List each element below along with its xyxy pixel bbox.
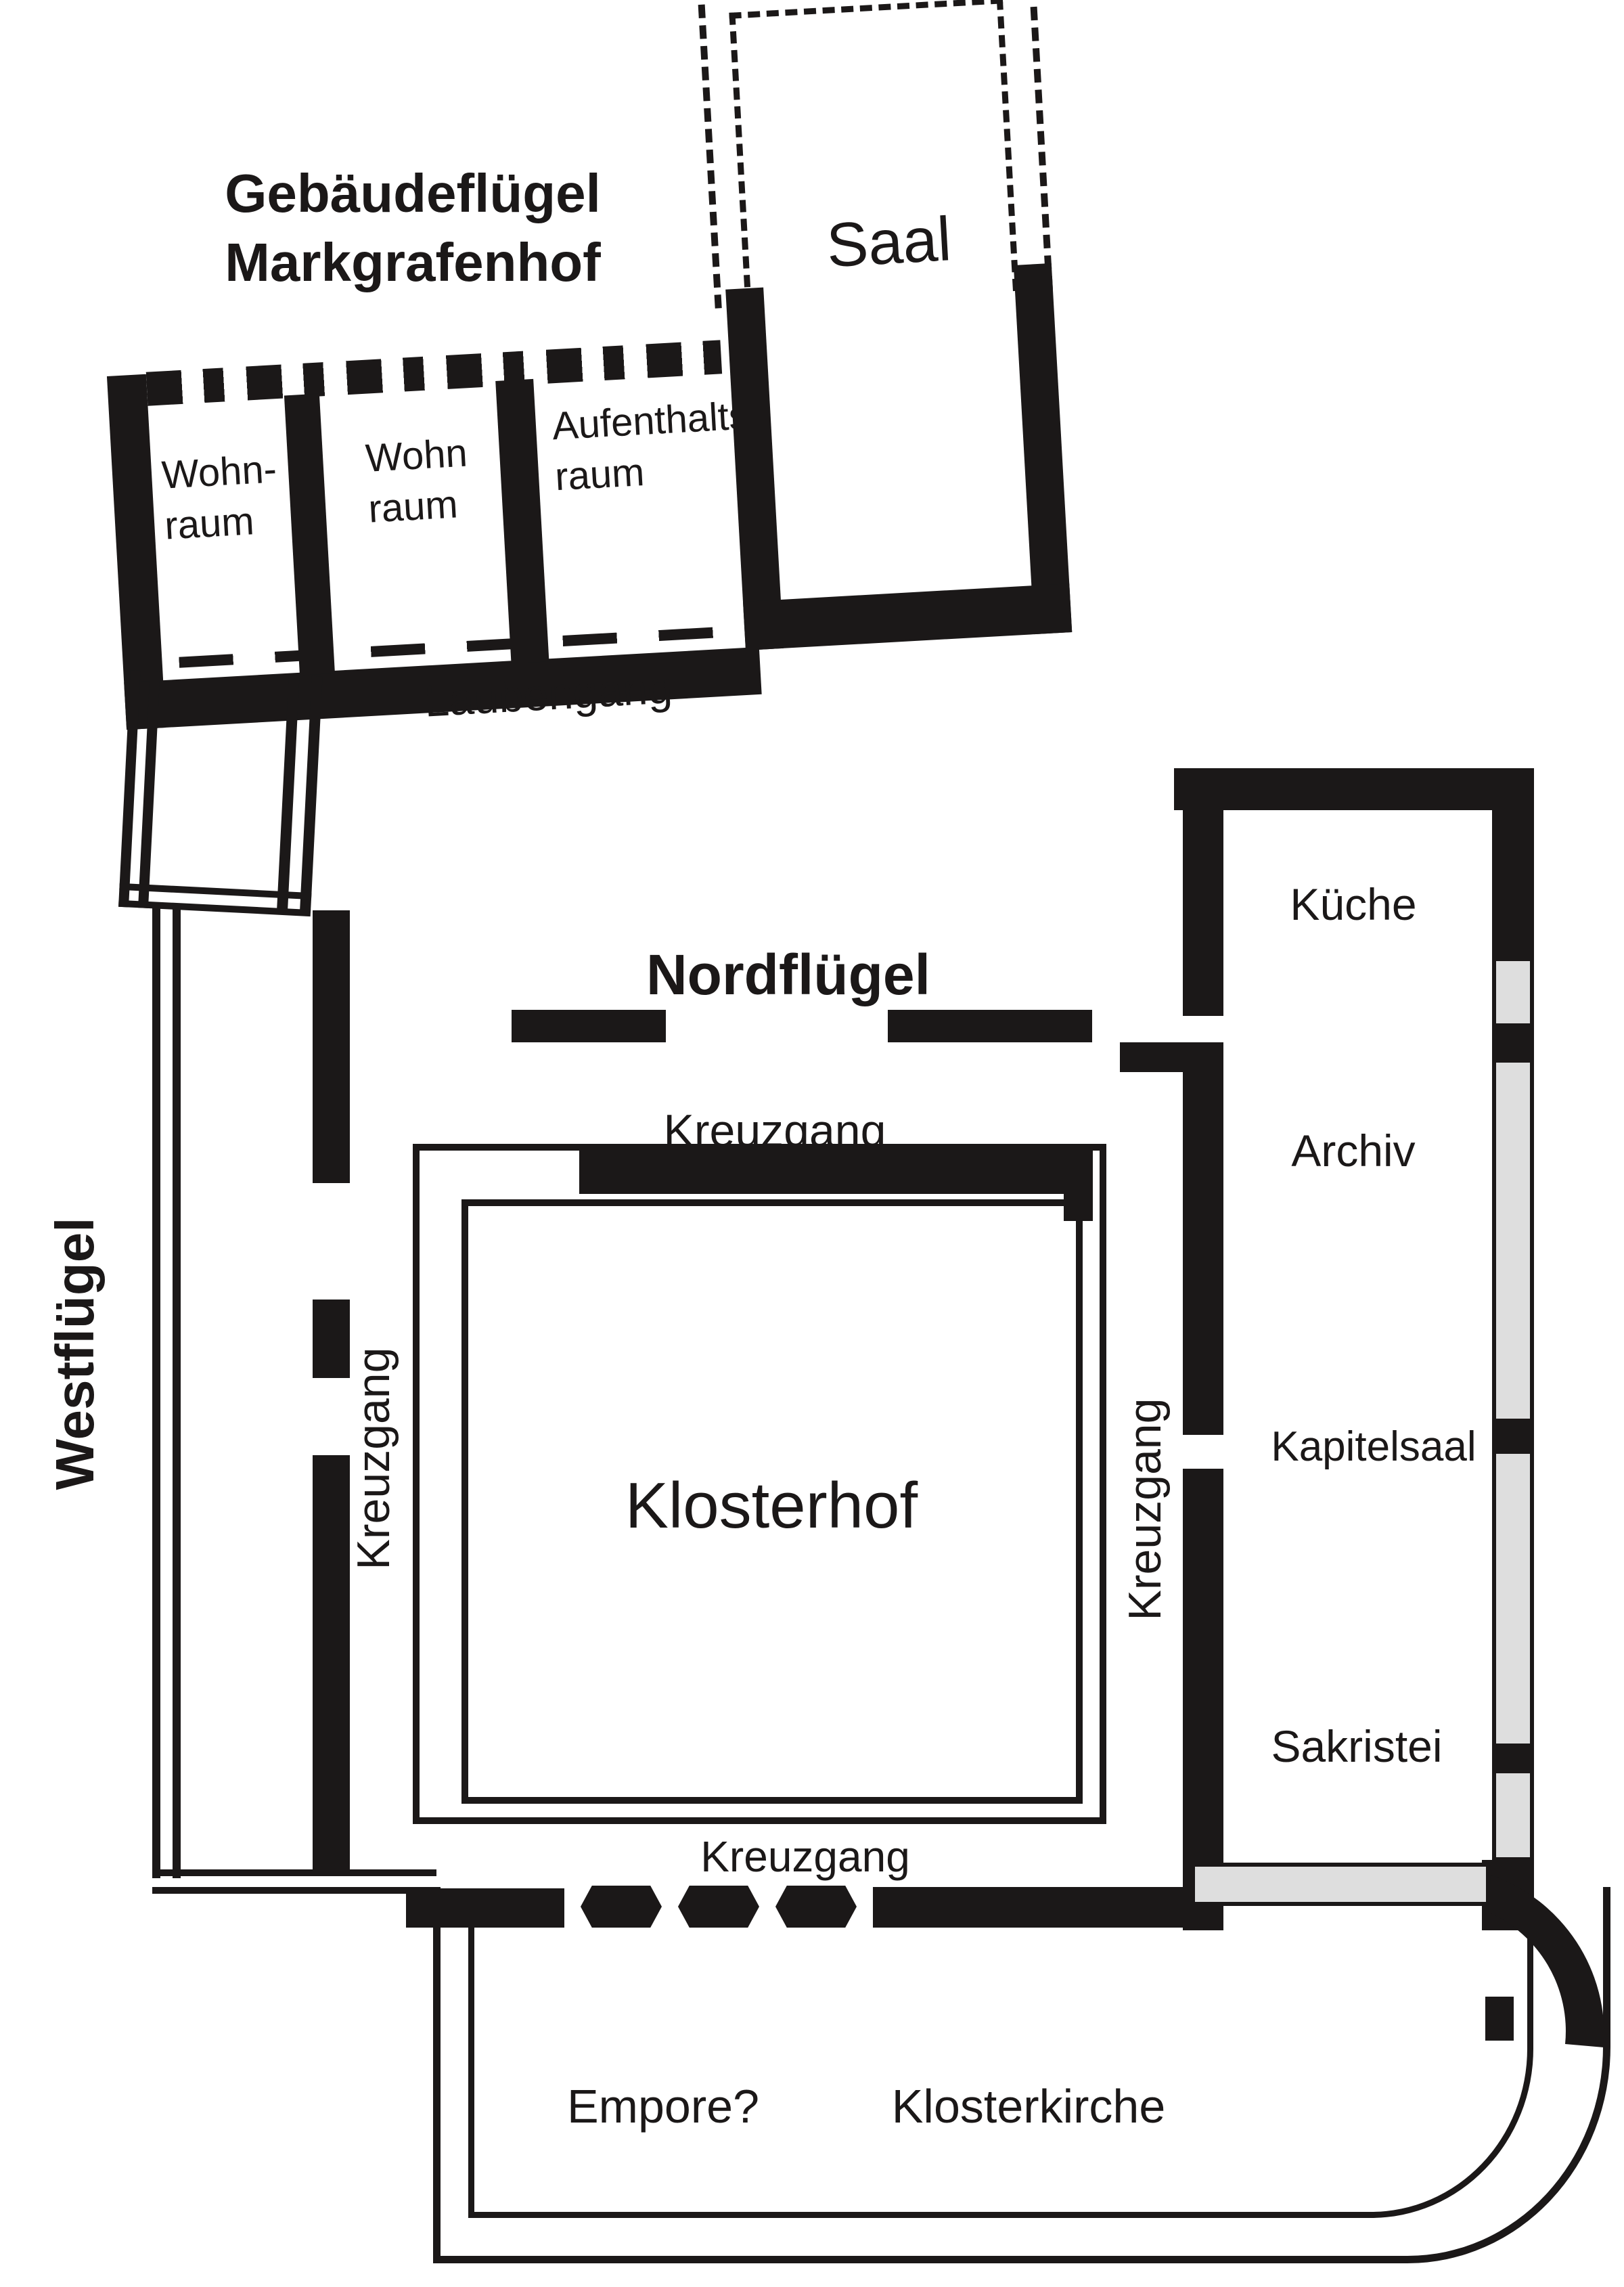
kreuzgang-west-wall-seg3 [313, 1455, 350, 1875]
label-klosterkirche: Klosterkirche [859, 2079, 1198, 2133]
eastwing-east-wall-gray-2 [1496, 1063, 1530, 1419]
eastwing-east-wall-gray-1 [1496, 961, 1530, 1023]
klosterhof-top-bar [579, 1151, 1093, 1194]
label-sakristei: Sakristei [1245, 1720, 1468, 1772]
kreuzgang-west-wall-seg1 [313, 910, 350, 1183]
kreuzgang-north-wall-seg1 [512, 1010, 666, 1042]
label-kreuzgang-south: Kreuzgang [673, 1831, 937, 1882]
label-nordfluegel: Nordflügel [623, 942, 954, 1008]
label-kreuzgang-west: Kreuzgang [347, 1283, 408, 1635]
wohnraum-2-line2: raum [367, 477, 498, 535]
label-empore: Empore? [548, 2079, 778, 2133]
label-kreuzgang-east: Kreuzgang [1119, 1333, 1179, 1685]
kreuzgang-north-wall-east-stub [1120, 1042, 1184, 1072]
kreuzgang-north-wall-seg2 [888, 1010, 1092, 1042]
wohnraum-1-line2: raum [163, 493, 294, 552]
eastwing-east-wall-gray-3 [1496, 1454, 1530, 1744]
west-wing-outer-line-a [152, 906, 160, 1878]
apse-pillar-stub [1485, 1997, 1514, 2041]
eastwing-west-wall-seg3 [1183, 1469, 1223, 1930]
church-inner-wall [468, 1928, 1533, 2218]
eastwing-west-wall-seg1 [1183, 810, 1223, 1016]
label-kapitelsaal: Kapitelsaal [1232, 1423, 1516, 1471]
label-archiv: Archiv [1252, 1125, 1455, 1176]
label-kueche: Küche [1252, 879, 1455, 930]
label-westfluegel: Westflügel [44, 1178, 105, 1530]
room-label-wohnraum-1: Wohn- raum [160, 443, 294, 552]
kreuzgang-west-wall-seg2 [313, 1300, 350, 1378]
room-label-wohnraum-2: Wohn raum [364, 426, 498, 535]
wing-room-divider-2 [495, 379, 549, 663]
label-saal: Saal [759, 200, 1019, 286]
label-klosterhof: Klosterhof [602, 1469, 941, 1543]
eastwing-east-wall-gray-4 [1496, 1773, 1530, 1857]
eastwing-top-wall [1174, 768, 1534, 810]
wohnraum-2-line1: Wohn [364, 426, 495, 484]
west-wing-bottom-line-b [152, 1887, 436, 1894]
saal-right-wall [1014, 263, 1072, 634]
eastwing-west-wall-seg2 [1183, 1042, 1223, 1435]
west-wing-bottom-line-a [152, 1869, 436, 1876]
wohnraum-1-line1: Wohn- [160, 443, 292, 501]
west-wing-upper-posts [20, 0, 439, 298]
west-wing-outer-line-b [173, 906, 181, 1878]
floor-plan: Gebäudeflügel Markgrafenhof Wohn- raum W… [0, 0, 1624, 2287]
